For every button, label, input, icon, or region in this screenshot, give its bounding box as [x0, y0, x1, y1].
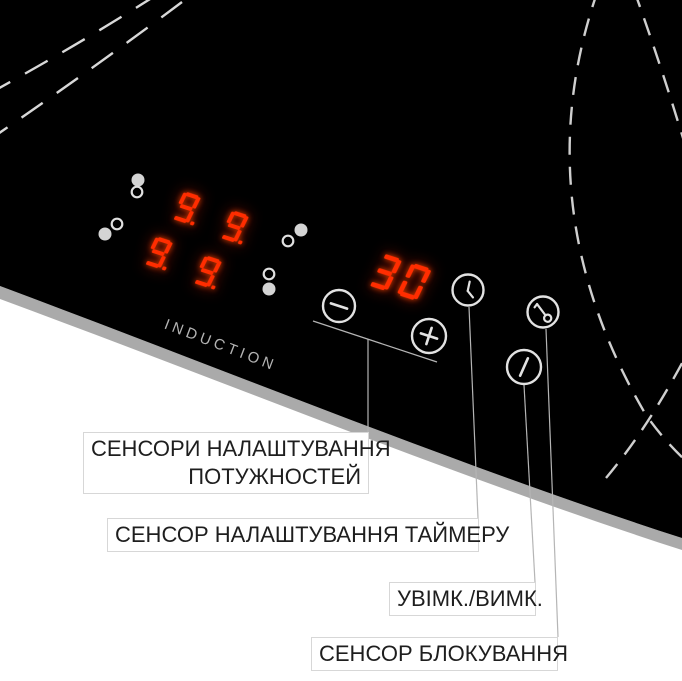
indicator-dot-filled [132, 174, 145, 187]
callout-lock-sensor: СЕНСОР БЛОКУВАННЯ [311, 637, 558, 671]
indicator-dot-filled [295, 224, 308, 237]
annotated-cooktop-diagram: INDUCTION СЕНСОРИ НАЛАШТУВАННЯ ПОТУЖНОСТ… [0, 0, 682, 681]
cooktop-scene [0, 0, 682, 681]
callout-on-off: УВІМК./ВИМК. [389, 582, 536, 616]
callout-power-sensors: СЕНСОРИ НАЛАШТУВАННЯ ПОТУЖНОСТЕЙ [83, 432, 369, 494]
indicator-dot-filled [263, 283, 276, 296]
indicator-dot-filled [99, 228, 112, 241]
callout-timer-sensor-text: СЕНСОР НАЛАШТУВАННЯ ТАЙМЕРУ [115, 521, 471, 549]
callout-on-off-text: УВІМК./ВИМК. [397, 585, 528, 613]
callout-power-sensors-line2: ПОТУЖНОСТЕЙ [91, 463, 361, 491]
callout-timer-sensor: СЕНСОР НАЛАШТУВАННЯ ТАЙМЕРУ [107, 518, 479, 552]
callout-power-sensors-line1: СЕНСОРИ НАЛАШТУВАННЯ [91, 435, 361, 463]
callout-lock-sensor-text: СЕНСОР БЛОКУВАННЯ [319, 640, 550, 668]
